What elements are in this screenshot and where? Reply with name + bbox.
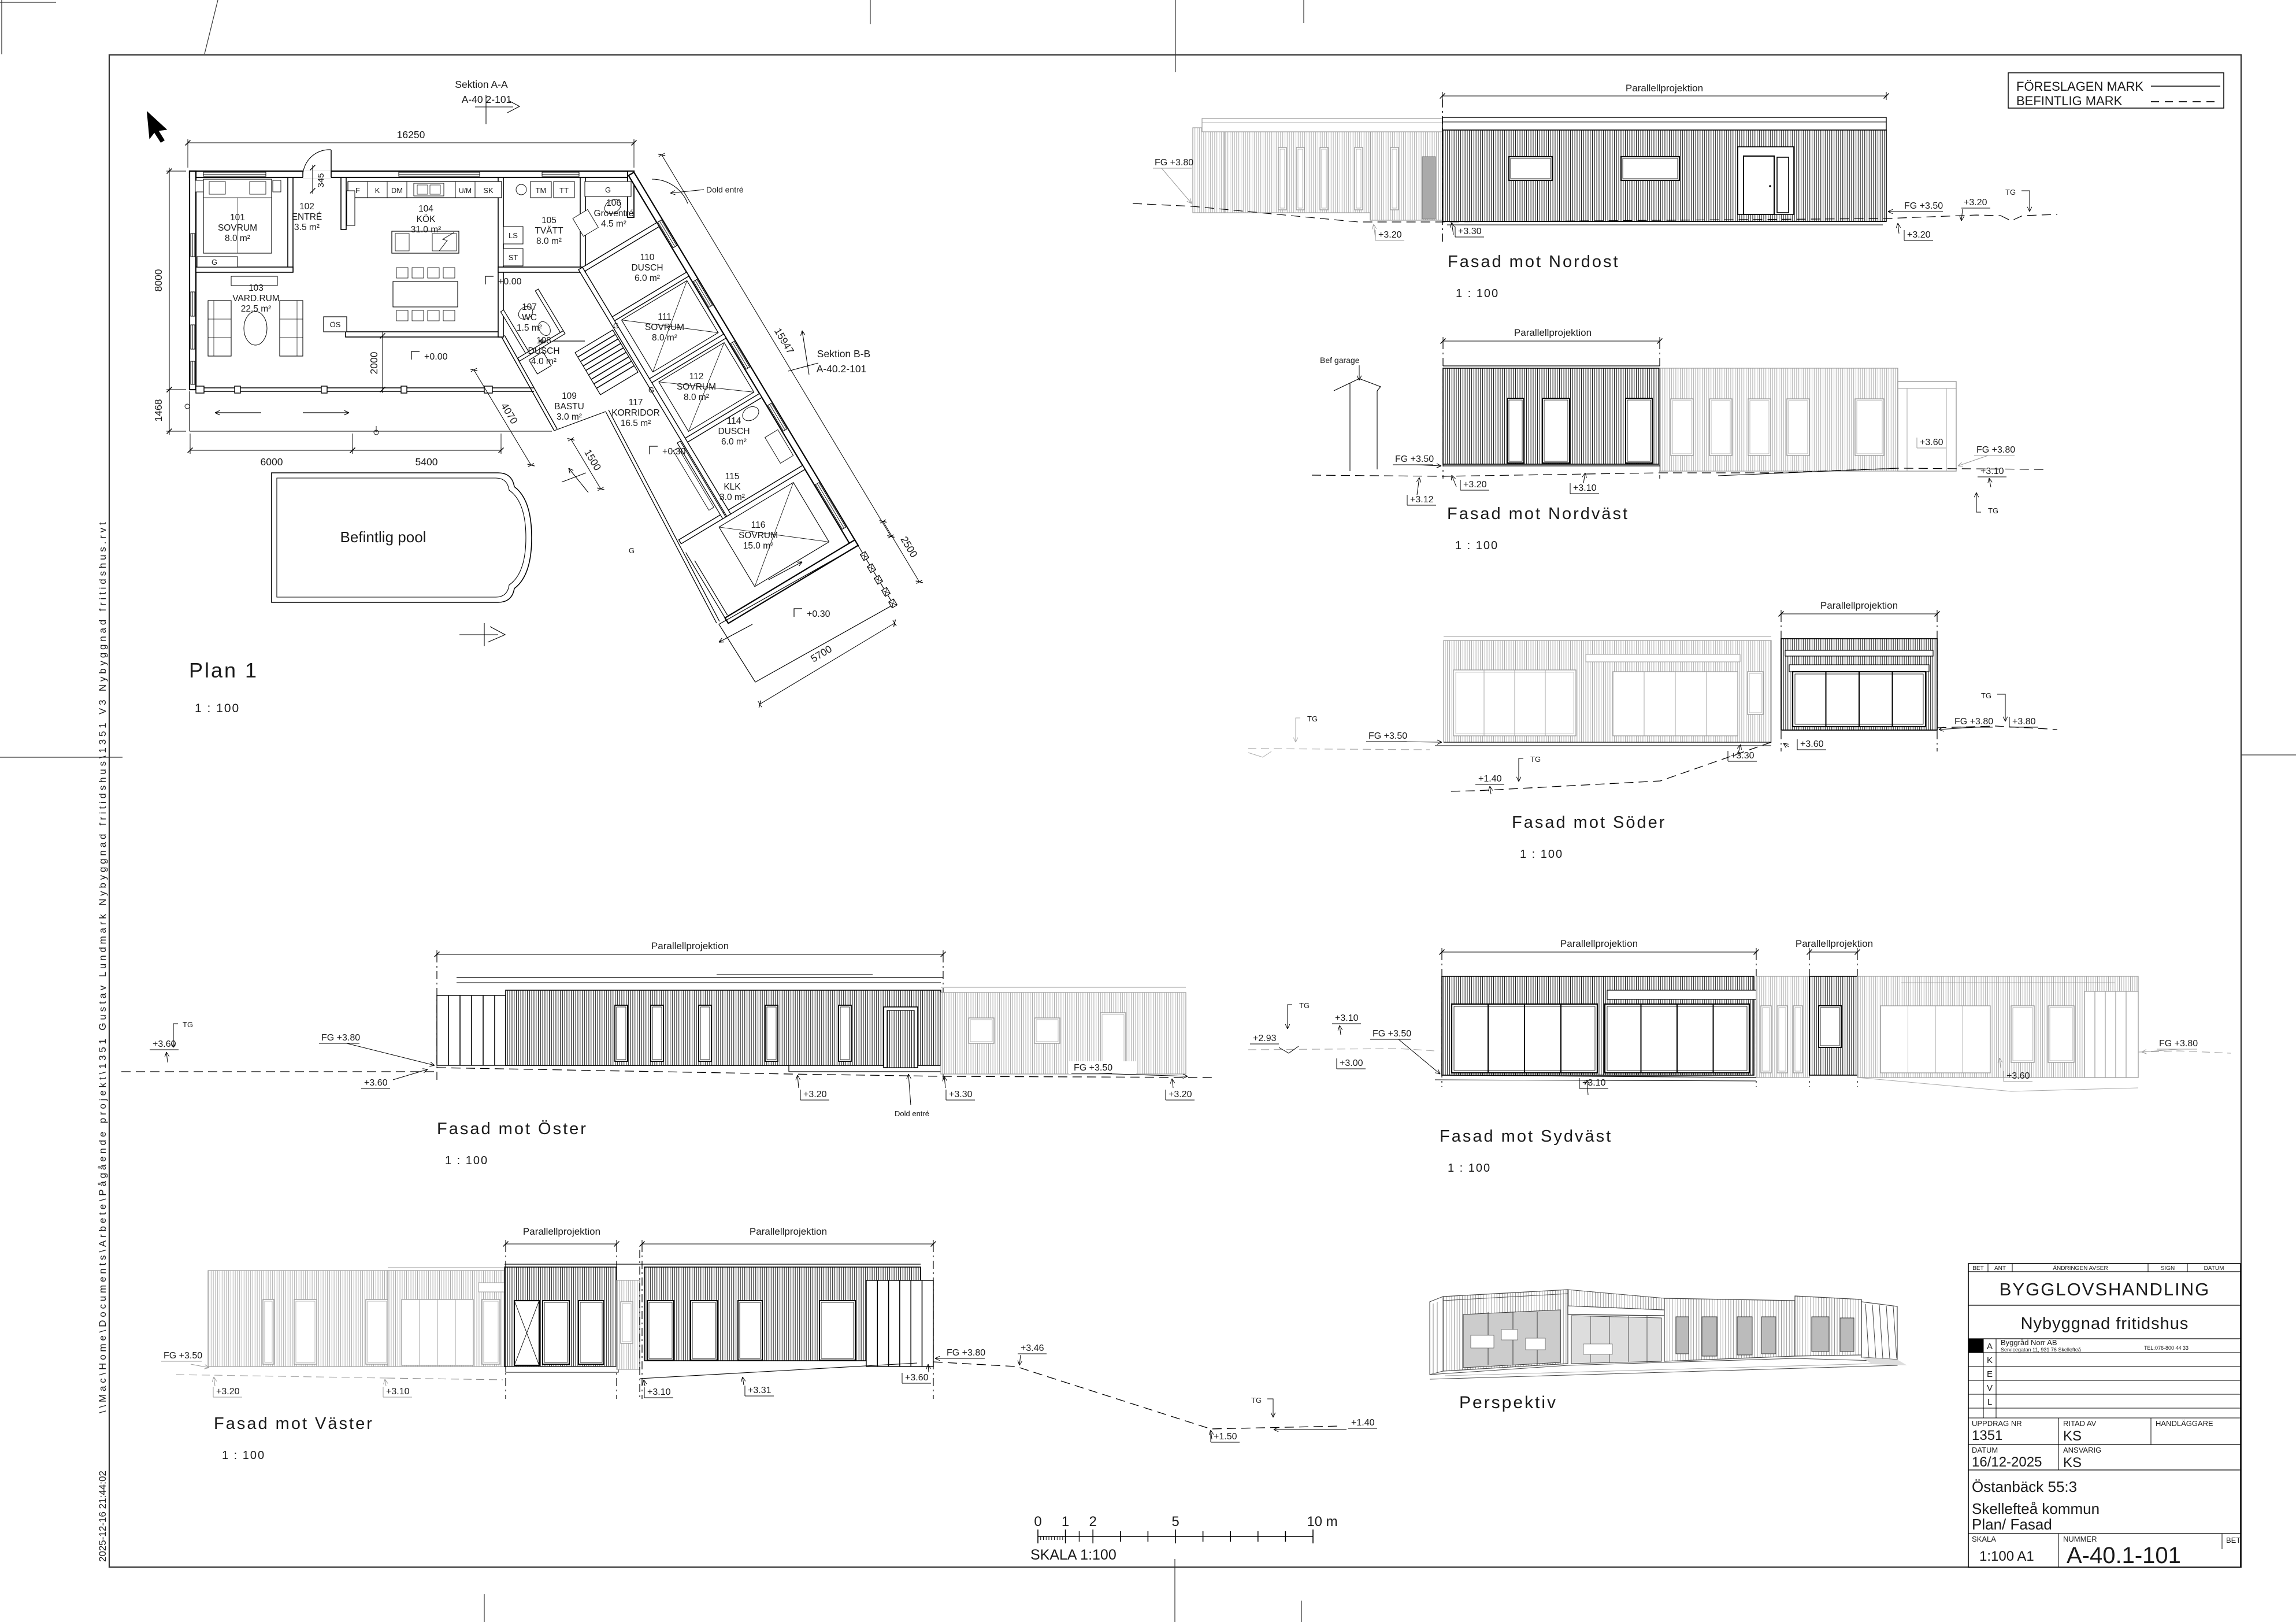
svg-text:FG +3.50: FG +3.50 (1074, 1063, 1112, 1073)
svg-text:1 : 100: 1 : 100 (1456, 287, 1499, 300)
svg-text:\\Mac\Home\Documents\Arbete\På: \\Mac\Home\Documents\Arbete\Pågående pro… (97, 520, 108, 1413)
svg-text:U/M: U/M (459, 187, 472, 195)
svg-text:Skellefteå kommun: Skellefteå kommun (1972, 1500, 2100, 1517)
svg-text:Bef garage: Bef garage (1320, 355, 1360, 365)
svg-text:102: 102 (299, 202, 314, 212)
svg-text:DUSCH: DUSCH (718, 427, 750, 436)
svg-text:TG: TG (183, 1020, 193, 1029)
svg-text:+3.80: +3.80 (2012, 717, 2036, 727)
svg-text:1351: 1351 (1972, 1428, 2002, 1443)
svg-text:1 : 100: 1 : 100 (195, 702, 240, 715)
svg-text:K: K (1987, 1356, 1993, 1365)
svg-text:Parallellprojektion: Parallellprojektion (651, 940, 729, 951)
svg-text:+3.20: +3.20 (803, 1090, 827, 1099)
svg-text:+0.30: +0.30 (807, 609, 830, 619)
svg-text:+0.00: +0.00 (498, 277, 522, 287)
svg-text:6.0 m²: 6.0 m² (721, 437, 747, 447)
svg-text:KS: KS (2063, 1455, 2082, 1471)
svg-text:8.0 m²: 8.0 m² (225, 234, 250, 243)
svg-text:FG +3.80: FG +3.80 (2159, 1039, 2198, 1049)
svg-text:Groventré: Groventré (594, 209, 634, 219)
svg-text:+3.30: +3.30 (1731, 751, 1755, 761)
svg-text:G: G (629, 546, 635, 555)
svg-text:+3.31: +3.31 (748, 1386, 771, 1395)
svg-text:TG: TG (1981, 691, 1991, 700)
svg-text:0: 0 (1034, 1514, 1041, 1530)
svg-text:10 m: 10 m (1307, 1514, 1337, 1530)
svg-text:KÖK: KÖK (417, 214, 436, 224)
svg-text:+0.30: +0.30 (662, 447, 686, 457)
svg-text:+3.60: +3.60 (1920, 438, 1943, 447)
svg-text:VARD.RUM: VARD.RUM (232, 294, 280, 303)
svg-text:FG +3.50: FG +3.50 (164, 1351, 202, 1361)
svg-text:SOVRUM: SOVRUM (645, 323, 684, 332)
svg-text:Parallellprojektion: Parallellprojektion (1514, 327, 1592, 338)
svg-text:1468: 1468 (153, 399, 164, 422)
svg-text:104: 104 (418, 204, 433, 214)
svg-text:FG +3.80: FG +3.80 (1976, 445, 2015, 455)
svg-text:105: 105 (541, 216, 557, 225)
svg-text:TG: TG (1988, 506, 1998, 515)
svg-text:A: A (1987, 1342, 1993, 1351)
svg-text:FG +3.50: FG +3.50 (1904, 201, 1943, 211)
svg-text:103: 103 (248, 283, 264, 293)
svg-text:HANDLÄGGARE: HANDLÄGGARE (2156, 1419, 2213, 1428)
svg-text:1 : 100: 1 : 100 (1448, 1162, 1491, 1175)
svg-text:2000: 2000 (368, 351, 380, 374)
svg-text:+3.10: +3.10 (647, 1387, 671, 1397)
svg-text:SOVRUM: SOVRUM (218, 223, 257, 233)
svg-text:TM: TM (536, 186, 547, 195)
svg-text:BET: BET (1972, 1265, 1983, 1272)
svg-text:345: 345 (316, 173, 326, 187)
svg-text:Sektion A-A: Sektion A-A (455, 79, 508, 90)
svg-text:Sektion B-B: Sektion B-B (817, 348, 870, 360)
svg-text:TG: TG (1307, 714, 1318, 723)
svg-text:Fasad mot Nordost: Fasad mot Nordost (1448, 253, 1620, 271)
svg-text:FG +3.50: FG +3.50 (1373, 1029, 1411, 1039)
svg-text:+2.93: +2.93 (1253, 1034, 1277, 1043)
svg-text:+3.20: +3.20 (1463, 480, 1487, 490)
svg-text:G: G (605, 186, 611, 194)
svg-text:G: G (613, 321, 619, 330)
svg-text:16/12-2025: 16/12-2025 (1972, 1454, 2042, 1470)
svg-text:Nybyggnad fritidshus: Nybyggnad fritidshus (2021, 1314, 2189, 1333)
svg-text:110: 110 (640, 253, 655, 262)
svg-text:+1.40: +1.40 (1351, 1418, 1375, 1428)
svg-text:TG: TG (2005, 188, 2016, 197)
svg-text:+3.60: +3.60 (364, 1078, 388, 1088)
svg-text:FG +3.80: FG +3.80 (321, 1033, 360, 1043)
svg-text:1.5 m²: 1.5 m² (517, 323, 542, 333)
svg-text:ÖS: ÖS (330, 320, 341, 329)
svg-text:6.0 m²: 6.0 m² (635, 273, 660, 283)
svg-text:A-40.1-101: A-40.1-101 (2067, 1543, 2181, 1568)
svg-text:FÖRESLAGEN MARK: FÖRESLAGEN MARK (2016, 79, 2143, 94)
svg-text:Parallellprojektion: Parallellprojektion (523, 1226, 600, 1237)
svg-text:117: 117 (629, 398, 643, 408)
svg-text:Plan/ Fasad: Plan/ Fasad (1972, 1516, 2052, 1533)
svg-text:15.0 m²: 15.0 m² (743, 541, 774, 551)
svg-text:22.5 m²: 22.5 m² (241, 304, 272, 314)
svg-text:+3.20: +3.20 (1378, 230, 1402, 240)
svg-text:1: 1 (1062, 1514, 1069, 1530)
svg-text:112: 112 (689, 372, 704, 382)
svg-text:+3.12: +3.12 (1410, 495, 1434, 505)
svg-text:114: 114 (727, 416, 741, 426)
svg-text:WC: WC (522, 313, 537, 323)
svg-text:Parallellprojektion: Parallellprojektion (1560, 938, 1638, 949)
svg-text:+1.50: +1.50 (1214, 1432, 1237, 1442)
svg-text:3.0 m²: 3.0 m² (557, 412, 582, 422)
svg-text:1 : 100: 1 : 100 (1520, 848, 1563, 861)
svg-text:Plan 1: Plan 1 (189, 658, 258, 682)
svg-text:Fasad mot Nordväst: Fasad mot Nordväst (1447, 505, 1629, 523)
svg-text:FG +3.80: FG +3.80 (1155, 158, 1193, 168)
svg-text:DUSCH: DUSCH (528, 346, 559, 356)
svg-text:G: G (648, 386, 654, 394)
svg-text:Parallellprojektion: Parallellprojektion (1796, 938, 1873, 949)
svg-text:5: 5 (1171, 1514, 1179, 1530)
svg-text:Dold entré: Dold entré (895, 1109, 929, 1118)
svg-text:Fasad mot Sydväst: Fasad mot Sydväst (1440, 1127, 1612, 1146)
svg-text:Perspektiv: Perspektiv (1459, 1393, 1557, 1412)
svg-text:107: 107 (522, 302, 537, 312)
svg-text:+3.60: +3.60 (1800, 739, 1824, 749)
svg-text:NUMMER: NUMMER (2063, 1535, 2097, 1543)
svg-text:KS: KS (2063, 1428, 2082, 1444)
svg-text:ÄNDRINGEN AVSER: ÄNDRINGEN AVSER (2053, 1265, 2108, 1272)
svg-text:+3.60: +3.60 (905, 1373, 929, 1383)
svg-text:TG: TG (1530, 755, 1541, 764)
svg-text:BASTU: BASTU (554, 402, 584, 412)
svg-text:8000: 8000 (153, 269, 164, 291)
svg-text:UPPDRAG NR: UPPDRAG NR (1972, 1419, 2022, 1428)
svg-text:8.0 m²: 8.0 m² (684, 392, 709, 402)
svg-text:Dold entré: Dold entré (706, 185, 744, 194)
svg-text:3.5 m²: 3.5 m² (294, 223, 320, 232)
svg-text:TVÄTT: TVÄTT (535, 226, 563, 236)
svg-text:8.0 m²: 8.0 m² (536, 236, 562, 246)
svg-text:+3.20: +3.20 (1907, 230, 1931, 240)
svg-text:+3.10: +3.10 (1335, 1013, 1359, 1023)
svg-text:V: V (1987, 1383, 1993, 1393)
svg-text:+1.40: +1.40 (1478, 774, 1502, 784)
svg-text:+3.00: +3.00 (1340, 1058, 1363, 1068)
svg-text:4.0 m²: 4.0 m² (531, 357, 557, 366)
svg-text:K: K (375, 186, 380, 195)
svg-text:SIGN: SIGN (2161, 1265, 2175, 1272)
svg-text:Parallellprojektion: Parallellprojektion (1626, 83, 1703, 94)
svg-text:TEL:076-800 44 33: TEL:076-800 44 33 (2144, 1345, 2189, 1351)
svg-text:G: G (212, 258, 217, 266)
svg-text:116: 116 (751, 520, 766, 530)
svg-text:TG: TG (1251, 1396, 1262, 1405)
svg-text:FG +3.50: FG +3.50 (1368, 731, 1407, 741)
svg-text:+3.60: +3.60 (2006, 1071, 2030, 1081)
svg-text:ANT: ANT (1994, 1265, 2006, 1272)
svg-text:ANSVARIG: ANSVARIG (2063, 1446, 2101, 1454)
svg-text:101: 101 (230, 213, 245, 223)
svg-text:+3.20: +3.20 (1964, 198, 1987, 208)
svg-text:LS: LS (509, 231, 518, 240)
svg-text:8.0 m²: 8.0 m² (652, 333, 677, 343)
svg-text:FG +3.80: FG +3.80 (1954, 717, 1993, 727)
svg-text:115: 115 (725, 472, 740, 482)
svg-text:E: E (1987, 1369, 1993, 1379)
svg-text:Fasad mot Öster: Fasad mot Öster (437, 1120, 588, 1138)
svg-text:SKALA: SKALA (1972, 1535, 1996, 1543)
svg-text:Befintlig pool: Befintlig pool (340, 528, 426, 546)
svg-text:F: F (355, 186, 360, 195)
svg-text:Parallellprojektion: Parallellprojektion (750, 1226, 827, 1237)
svg-text:16250: 16250 (397, 129, 425, 140)
svg-text:A-40 2-101: A-40 2-101 (462, 94, 512, 105)
svg-text:+3.60: +3.60 (153, 1039, 176, 1049)
svg-text:+3.10: +3.10 (386, 1387, 410, 1397)
svg-text:106: 106 (606, 198, 621, 208)
svg-text:+3.10: +3.10 (1573, 483, 1597, 493)
svg-text:SOVRUM: SOVRUM (739, 531, 778, 540)
svg-text:FG +3.50: FG +3.50 (1395, 454, 1434, 464)
svg-text:+3.10: +3.10 (1980, 466, 2004, 476)
svg-text:SKALA 1:100: SKALA 1:100 (1030, 1547, 1117, 1563)
svg-text:1 : 100: 1 : 100 (1455, 539, 1498, 552)
svg-text:+3.46: +3.46 (1021, 1343, 1044, 1353)
svg-text:+3.30: +3.30 (1458, 227, 1482, 236)
svg-text:16.5 m²: 16.5 m² (621, 419, 651, 428)
svg-text:DATUM: DATUM (2204, 1265, 2224, 1272)
svg-text:KLK: KLK (724, 482, 741, 492)
svg-text:DUSCH: DUSCH (631, 263, 663, 273)
svg-text:+3.20: +3.20 (216, 1387, 240, 1397)
svg-text:2025-12-16 21:44:02: 2025-12-16 21:44:02 (97, 1471, 108, 1562)
svg-text:5400: 5400 (416, 456, 438, 468)
svg-text:L: L (1987, 1397, 1992, 1407)
svg-text:Östanbäck 55:3: Östanbäck 55:3 (1972, 1478, 2077, 1495)
svg-text:A-40.2-101: A-40.2-101 (817, 363, 867, 375)
svg-text:ENTRÉ: ENTRÉ (292, 212, 322, 222)
svg-text:108: 108 (536, 336, 551, 346)
svg-text:3.0 m²: 3.0 m² (719, 492, 745, 502)
svg-text:Byggråd Norr AB: Byggråd Norr AB (2001, 1338, 2057, 1347)
svg-text:109: 109 (562, 391, 577, 401)
svg-text:BYGGLOVSHANDLING: BYGGLOVSHANDLING (2000, 1279, 2210, 1299)
svg-text:SOVRUM: SOVRUM (677, 382, 716, 392)
svg-text:TT: TT (559, 186, 569, 195)
svg-text:DM: DM (391, 186, 403, 195)
svg-text:6000: 6000 (261, 456, 283, 468)
svg-text:4.5 m²: 4.5 m² (601, 219, 626, 229)
svg-text:Fasad mot Söder: Fasad mot Söder (1512, 813, 1666, 832)
svg-text:BEFINTLIG MARK: BEFINTLIG MARK (2016, 94, 2123, 108)
svg-text:DATUM: DATUM (1972, 1446, 1998, 1454)
svg-text:111: 111 (658, 312, 672, 322)
svg-text:TG: TG (1299, 1001, 1310, 1010)
svg-text:Fasad mot Väster: Fasad mot Väster (214, 1414, 374, 1433)
svg-text:1 : 100: 1 : 100 (445, 1154, 488, 1167)
svg-text:BET: BET (2226, 1536, 2241, 1545)
svg-text:2: 2 (1089, 1514, 1097, 1530)
svg-text:+3.20: +3.20 (1169, 1090, 1192, 1099)
svg-text:Servicegatan 11, 931 76 Skelle: Servicegatan 11, 931 76 Skellefteå (2001, 1347, 2081, 1353)
svg-text:ST: ST (509, 253, 518, 262)
svg-text:1 : 100: 1 : 100 (222, 1449, 265, 1462)
svg-text:1:100 A1: 1:100 A1 (1979, 1549, 2034, 1564)
svg-text:+0.00: +0.00 (424, 352, 448, 362)
svg-text:+3.30: +3.30 (949, 1090, 973, 1099)
svg-text:Parallellprojektion: Parallellprojektion (1820, 600, 1898, 611)
svg-text:FG +3.80: FG +3.80 (947, 1348, 985, 1358)
svg-text:31.0 m²: 31.0 m² (411, 225, 442, 235)
svg-text:SK: SK (483, 186, 494, 195)
svg-text:RITAD AV: RITAD AV (2063, 1419, 2097, 1428)
svg-text:KORRIDOR: KORRIDOR (611, 408, 660, 418)
